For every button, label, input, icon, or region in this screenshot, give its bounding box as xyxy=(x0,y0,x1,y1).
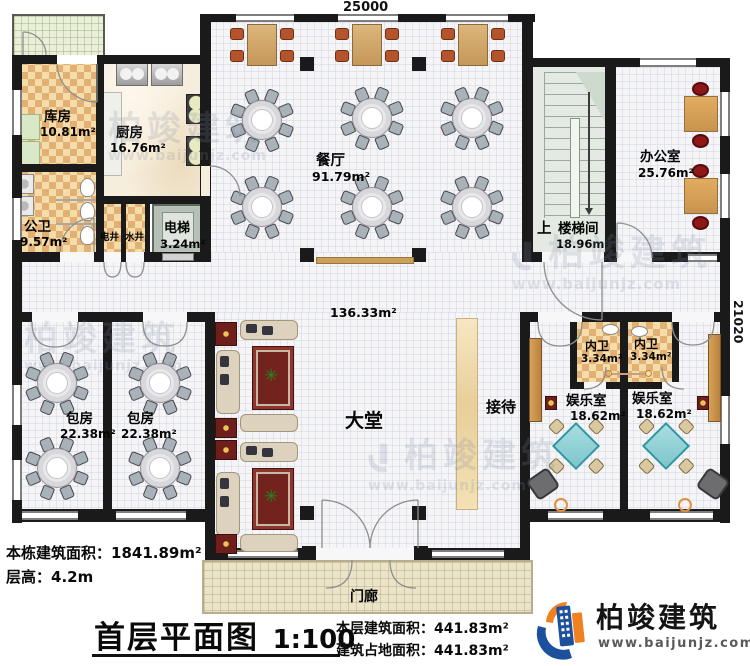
room-area-lobby: 136.33m² xyxy=(330,306,397,319)
mahjong-table xyxy=(642,422,690,470)
pillow xyxy=(262,326,273,335)
sink-icon xyxy=(602,324,619,335)
door-opening xyxy=(126,252,144,262)
watermark-website: www.baijunjz.com xyxy=(512,277,712,292)
watermark: 柏竣建筑 www.baijunjz.com xyxy=(368,436,560,493)
wall-segment xyxy=(672,322,679,386)
window xyxy=(236,14,294,22)
chair-icon xyxy=(491,28,505,40)
dining-table-rect xyxy=(247,24,277,66)
room-area-inner-wc-1: 3.34m² xyxy=(581,354,622,365)
window xyxy=(338,14,398,22)
room-area-dining: 91.79m² xyxy=(312,170,370,183)
room-label-inner-wc-2: 内卫 xyxy=(634,338,658,351)
round-table xyxy=(352,187,392,227)
column xyxy=(412,506,426,520)
column xyxy=(300,506,314,520)
dining-partition-counter xyxy=(316,257,414,264)
office-desk xyxy=(684,96,718,132)
chair-icon xyxy=(441,50,455,62)
plant-icon: ✳ xyxy=(264,489,278,506)
room-label-public-wc: 公卫 xyxy=(24,220,51,234)
stair-direction-arrow-icon xyxy=(585,208,593,215)
toilet-icon xyxy=(80,226,95,245)
room-area-storage: 10.81m² xyxy=(40,126,96,139)
building-total-area-label: 本栋建筑面积： xyxy=(6,544,111,562)
column xyxy=(300,57,314,71)
wc-rail xyxy=(611,373,646,375)
plan-title: 首层平面图 1:100 xyxy=(94,612,355,657)
window xyxy=(432,550,504,558)
wall-segment xyxy=(570,322,577,386)
room-label-porch: 门廊 xyxy=(350,590,378,605)
room-area-game-room-2: 18.62m² xyxy=(636,408,692,421)
chair-icon xyxy=(385,28,399,40)
stair-direction-line xyxy=(588,92,590,208)
window xyxy=(12,460,22,500)
column xyxy=(300,248,314,262)
main-entrance-opening xyxy=(316,548,414,560)
dimension-top: 25000 xyxy=(343,0,388,15)
door-knob-icon xyxy=(645,370,652,377)
door-opening xyxy=(201,166,210,196)
building-total-area-value: 1841.89m² xyxy=(111,544,202,562)
footprint-area-label: 建筑占地面积： xyxy=(336,643,434,659)
wall-segment xyxy=(121,200,126,256)
sofa xyxy=(240,414,298,432)
floor-plan: ✳ ✳ xyxy=(0,0,750,666)
wall-segment xyxy=(96,196,210,204)
sideboard xyxy=(708,334,721,422)
room-area-office: 25.76m² xyxy=(638,167,694,180)
room-label-dining: 餐厅 xyxy=(316,154,345,169)
wall-segment xyxy=(522,14,533,262)
chair-icon xyxy=(280,28,294,40)
toilet-icon xyxy=(80,202,95,221)
cabinet xyxy=(215,418,237,438)
room-area-private-room-1: 22.38m² xyxy=(60,428,116,441)
window xyxy=(12,90,22,135)
company-logo-icon xyxy=(536,598,592,660)
window xyxy=(650,511,713,520)
chair-icon xyxy=(335,50,349,62)
room-label-water-shaft: 水井 xyxy=(125,233,144,243)
room-label-game-room-2: 娱乐室 xyxy=(632,392,673,406)
round-table xyxy=(352,98,392,138)
floor-area-label: 本层建筑面积： xyxy=(336,621,434,637)
wall-segment xyxy=(12,164,104,172)
wall-segment xyxy=(533,58,730,67)
round-table xyxy=(452,98,492,138)
chair-icon xyxy=(491,50,505,62)
sideboard xyxy=(529,338,542,422)
room-label-inner-wc-1: 内卫 xyxy=(585,340,609,353)
sink-icon xyxy=(631,326,648,337)
door-opening xyxy=(672,312,714,322)
floor-height-value: 4.2m xyxy=(51,568,93,586)
wc-partition xyxy=(56,223,100,225)
office-chair-icon xyxy=(692,82,709,96)
pillow xyxy=(220,496,229,507)
window xyxy=(640,58,696,67)
watermark-company: 柏竣建筑 xyxy=(404,439,560,473)
door-opening xyxy=(538,312,582,322)
chair-icon xyxy=(280,50,294,62)
company-name: 柏竣建筑 xyxy=(596,596,720,636)
plant-icon: ✳ xyxy=(264,368,278,385)
window xyxy=(22,511,78,520)
wall-cabinet xyxy=(697,396,709,410)
pillow xyxy=(246,446,257,455)
room-label-elevator: 电梯 xyxy=(164,222,190,236)
window xyxy=(720,92,730,136)
company-website: www.baijunjz.com xyxy=(598,636,750,651)
office-chair-icon xyxy=(692,164,709,178)
room-area-game-room-1: 18.62m² xyxy=(570,410,626,423)
room-label-game-room-1: 娱乐室 xyxy=(566,394,607,408)
office-chair-icon xyxy=(692,134,709,148)
room-label-storage: 库房 xyxy=(44,110,71,124)
round-table xyxy=(242,187,282,227)
watermark-logo-icon xyxy=(512,234,542,274)
column xyxy=(412,248,426,262)
chair-icon xyxy=(441,28,455,40)
watermark-company: 柏竣建筑 xyxy=(548,236,712,272)
round-table xyxy=(140,363,180,403)
round-table xyxy=(140,448,180,488)
window xyxy=(548,511,603,520)
dimension-right: 21020 xyxy=(731,300,746,344)
building-total-area: 本栋建筑面积：1841.89m² xyxy=(6,542,202,563)
watermark-website: www.baijunjz.com xyxy=(368,479,560,493)
watermark: 柏竣建筑 www.baijunjz.com xyxy=(512,234,712,292)
column xyxy=(414,546,428,560)
wall-cabinet xyxy=(545,396,557,410)
cabinet xyxy=(215,440,237,460)
round-table xyxy=(452,187,492,227)
window xyxy=(12,198,22,240)
window xyxy=(116,511,186,520)
pillow xyxy=(220,356,229,367)
wall-segment xyxy=(12,55,210,64)
room-area-elevator: 3.24m² xyxy=(160,238,205,250)
watermark-company: 柏竣建筑 xyxy=(24,322,183,356)
office-desk xyxy=(684,178,718,214)
kitchen-sink-icon xyxy=(151,62,183,86)
window xyxy=(12,385,22,425)
door-opening xyxy=(60,252,94,262)
stool-icon xyxy=(678,498,692,512)
column xyxy=(302,546,316,560)
room-area-inner-wc-2: 3.34m² xyxy=(630,352,671,363)
chair-icon xyxy=(230,50,244,62)
door-opening xyxy=(104,252,121,262)
room-label-reception: 接待 xyxy=(486,400,516,416)
round-table xyxy=(37,448,77,488)
round-table xyxy=(37,363,77,403)
door-opening xyxy=(662,382,684,389)
stair-rail xyxy=(570,118,580,218)
elevator-door xyxy=(162,253,194,261)
door-knob-icon xyxy=(605,370,612,377)
watermark-website: www.baijunjz.com xyxy=(108,149,267,163)
sofa xyxy=(240,534,298,552)
plan-title-text: 首层平面图 xyxy=(94,620,259,656)
window xyxy=(720,396,730,444)
title-underline xyxy=(92,654,340,657)
cabinet xyxy=(215,322,237,346)
floor-area-value: 441.83m² xyxy=(434,621,509,637)
chair-icon xyxy=(385,50,399,62)
toilet-icon xyxy=(80,178,95,197)
floor-area: 本层建筑面积：441.83m² xyxy=(336,618,509,638)
footprint-area: 建筑占地面积：441.83m² xyxy=(336,640,509,660)
round-table xyxy=(242,100,282,140)
cabinet xyxy=(215,534,237,554)
pillow xyxy=(246,324,257,333)
room-label-private-room-1: 包房 xyxy=(66,412,93,426)
wall-segment xyxy=(145,200,150,256)
window xyxy=(446,14,508,22)
door-opening xyxy=(57,55,97,64)
kitchen-sink-icon xyxy=(116,62,148,86)
floor-height-label: 层高： xyxy=(6,568,51,586)
room-label-electric-shaft: 电井 xyxy=(100,233,119,243)
chair-icon xyxy=(230,28,244,40)
wall-segment xyxy=(205,312,215,560)
room-area-private-room-2: 22.38m² xyxy=(121,428,177,441)
footprint-area-value: 441.83m² xyxy=(434,643,509,659)
stool-icon xyxy=(554,498,568,512)
room-area-public-wc: 9.57m² xyxy=(20,236,67,249)
floor-height: 层高：4.2m xyxy=(6,566,93,587)
chair-icon xyxy=(335,28,349,40)
dining-table-rect xyxy=(352,24,382,66)
wc-partition xyxy=(56,199,100,201)
column xyxy=(412,57,426,71)
pillow xyxy=(220,478,229,489)
room-label-lobby: 大堂 xyxy=(345,412,383,432)
room-label-office: 办公室 xyxy=(640,150,681,164)
terrace-floor xyxy=(12,14,105,58)
pillow xyxy=(262,448,273,457)
office-chair-icon xyxy=(692,216,709,230)
window xyxy=(720,174,730,218)
door-opening xyxy=(584,382,606,389)
wall-segment xyxy=(96,60,104,260)
porch-floor xyxy=(202,560,533,614)
pillow xyxy=(220,374,229,385)
room-label-private-room-2: 包房 xyxy=(127,412,154,426)
dining-table-rect xyxy=(458,24,488,66)
watermark-logo-icon xyxy=(368,436,398,476)
